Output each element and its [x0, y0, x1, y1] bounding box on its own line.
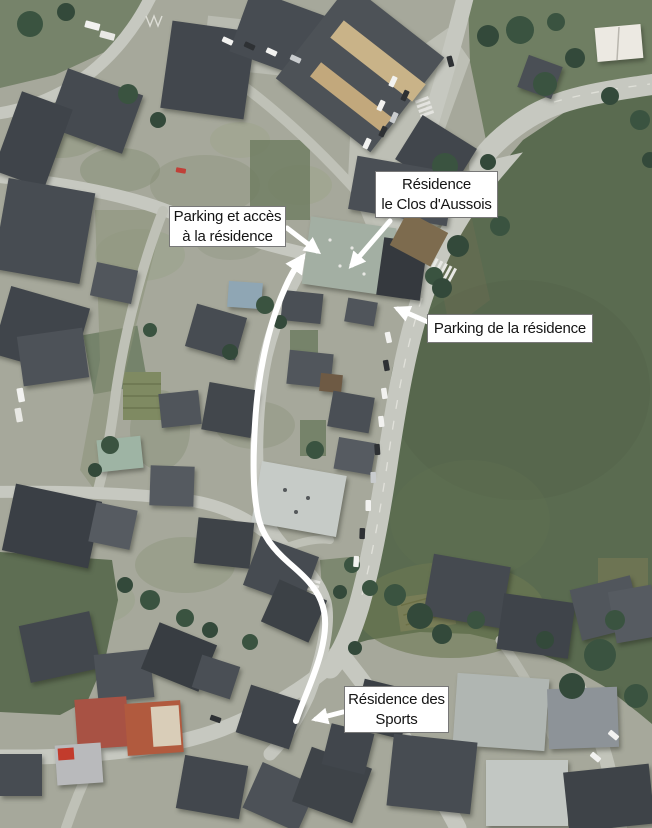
aerial-map-image [0, 0, 652, 828]
annotation-text-line: Parking et accès [174, 207, 282, 227]
annotation-text-line: Résidence [402, 175, 471, 195]
annotation-text-line: à la résidence [182, 227, 273, 247]
annotation-label-residence-sports: Résidence des Sports [344, 686, 449, 733]
annotation-label-parking-access: Parking et accès à la résidence [169, 206, 286, 247]
annotation-label-residence-clos: Résidence le Clos d'Aussois [375, 171, 498, 218]
annotated-aerial-map: Parking et accès à la résidence Résidenc… [0, 0, 652, 828]
annotation-text-line: Parking de la résidence [434, 319, 586, 339]
annotation-text-line: Sports [375, 710, 417, 730]
annotation-text-line: le Clos d'Aussois [381, 195, 491, 215]
annotation-label-parking-residence: Parking de la résidence [427, 314, 593, 343]
annotation-text-line: Résidence des [348, 690, 445, 710]
